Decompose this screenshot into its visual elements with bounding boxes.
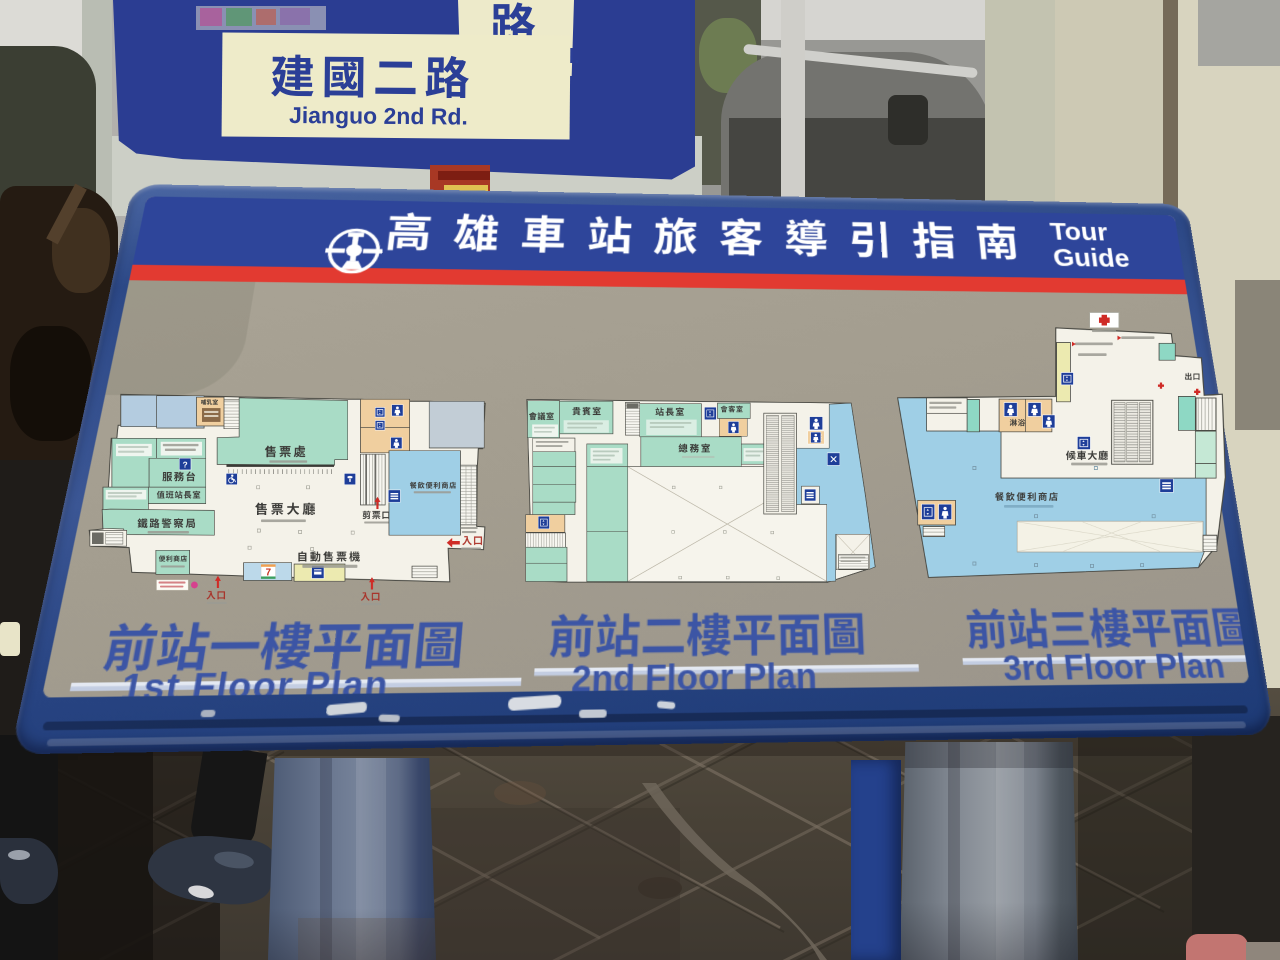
svg-text:?: ?: [183, 460, 189, 470]
svg-text:7: 7: [266, 567, 272, 578]
